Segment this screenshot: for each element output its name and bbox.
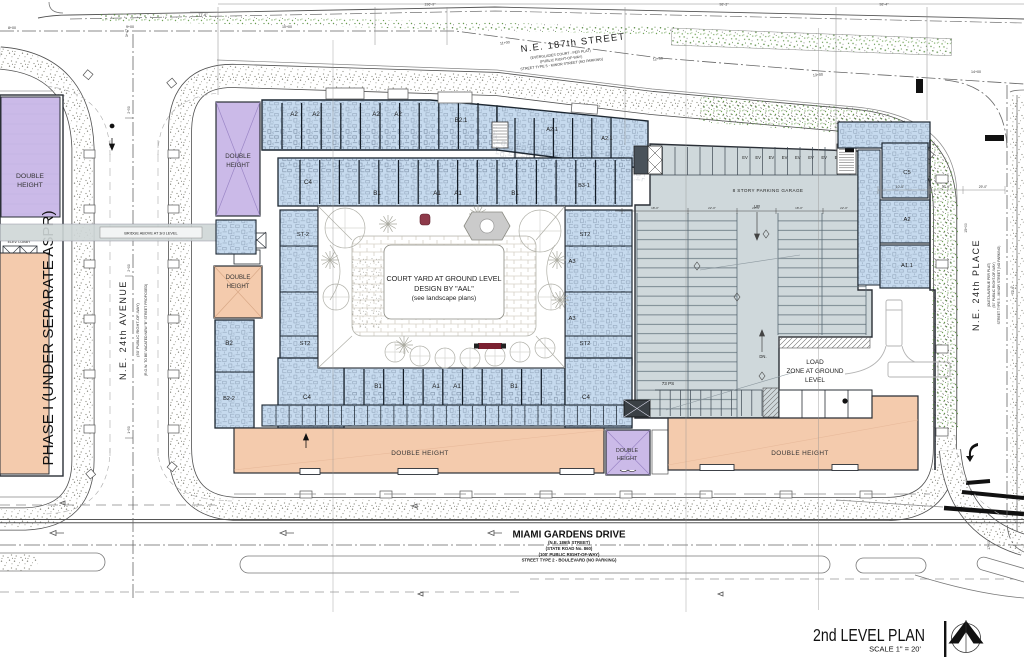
svg-text:29'-0": 29'-0" xyxy=(979,185,988,189)
svg-text:A1: A1 xyxy=(453,383,461,390)
svg-text:22'-0": 22'-0" xyxy=(708,206,716,210)
svg-text:DOUBLE HEIGHT: DOUBLE HEIGHT xyxy=(771,450,828,457)
svg-text:N.E. 24th PLACE: N.E. 24th PLACE xyxy=(971,239,981,331)
svg-text:(see landscape plans): (see landscape plans) xyxy=(412,295,477,302)
svg-text:2nd LEVEL PLAN: 2nd LEVEL PLAN xyxy=(813,625,925,645)
svg-text:14+00: 14+00 xyxy=(971,70,981,74)
svg-text:17+00: 17+00 xyxy=(987,540,991,550)
svg-text:(R.O.W. TO BE VACATED NEW "B": (R.O.W. TO BE VACATED NEW "B" STREET PRO… xyxy=(144,284,148,376)
svg-text:8 STORY PARKING GARAGE: 8 STORY PARKING GARAGE xyxy=(733,188,804,193)
svg-text:B1: B1 xyxy=(511,190,519,197)
svg-text:DOUBLE: DOUBLE xyxy=(225,153,250,160)
svg-text:EV: EV xyxy=(742,155,748,160)
svg-text:HEIGHT: HEIGHT xyxy=(226,162,250,169)
svg-text:(100' PUBLIC RIGHT-OF-WAY): (100' PUBLIC RIGHT-OF-WAY) xyxy=(539,552,600,557)
svg-text:HEIGHT: HEIGHT xyxy=(227,284,250,290)
svg-text:2+00: 2+00 xyxy=(127,264,131,271)
svg-text:C4: C4 xyxy=(582,394,590,401)
svg-text:1+50: 1+50 xyxy=(127,426,131,433)
svg-text:A2: A2 xyxy=(903,217,910,223)
svg-text:3+47: 3+47 xyxy=(125,29,129,37)
svg-text:C5: C5 xyxy=(903,170,910,176)
svg-text:DESIGN BY "AAL": DESIGN BY "AAL" xyxy=(414,284,474,293)
svg-text:A1: A1 xyxy=(454,190,462,197)
svg-text:33'-0": 33'-0" xyxy=(942,185,951,189)
svg-text:ST2: ST2 xyxy=(580,341,591,347)
svg-text:B2-2: B2-2 xyxy=(223,396,235,402)
svg-text:A2.1: A2.1 xyxy=(601,136,613,142)
svg-text:(50' PUBLIC RIGHT-OF-WAY): (50' PUBLIC RIGHT-OF-WAY) xyxy=(992,262,996,307)
svg-text:(50' PUBLIC RIGHT-OF-WAY): (50' PUBLIC RIGHT-OF-WAY) xyxy=(135,303,140,357)
svg-text:A2: A2 xyxy=(394,111,402,118)
svg-text:LEVEL: LEVEL xyxy=(805,377,825,384)
svg-text:PHASE I (UNDER SEPARATE ASPR): PHASE I (UNDER SEPARATE ASPR) xyxy=(40,211,57,466)
svg-text:A2: A2 xyxy=(372,111,380,118)
svg-text:10+00: 10+00 xyxy=(282,25,292,29)
svg-text:C4: C4 xyxy=(303,394,311,401)
svg-text:B1: B1 xyxy=(510,383,518,390)
svg-text:98'-4": 98'-4" xyxy=(879,3,889,7)
svg-text:23'-4": 23'-4" xyxy=(752,206,760,210)
svg-text:LOAD: LOAD xyxy=(806,359,824,366)
svg-text:15+00: 15+00 xyxy=(964,223,968,233)
svg-text:A3: A3 xyxy=(568,316,575,322)
svg-text:HEIGHT: HEIGHT xyxy=(617,456,638,462)
svg-text:EV: EV xyxy=(755,155,761,160)
svg-text:BRIDGE ABOVE AT 3rd LEVEL: BRIDGE ABOVE AT 3rd LEVEL xyxy=(124,232,177,236)
svg-text:77'-6": 77'-6" xyxy=(198,13,208,17)
svg-text:73 PS: 73 PS xyxy=(662,381,675,386)
svg-text:B1: B1 xyxy=(374,383,382,390)
svg-text:EV: EV xyxy=(769,155,775,160)
svg-text:A1: A1 xyxy=(432,383,440,390)
svg-text:18'-0": 18'-0" xyxy=(795,206,803,210)
svg-text:EV: EV xyxy=(795,155,801,160)
svg-text:HEIGHT: HEIGHT xyxy=(17,182,43,189)
svg-text:22'-0": 22'-0" xyxy=(840,206,848,210)
svg-text:2+50: 2+50 xyxy=(127,106,131,113)
svg-text:STREET TYPE 2 - BOULEVARD (NO: STREET TYPE 2 - BOULEVARD (NO PARKING) xyxy=(522,558,617,563)
svg-text:(N.E. 186th STREET): (N.E. 186th STREET) xyxy=(548,540,590,545)
svg-text:STREET TYPE 5 - MINOR STREET (: STREET TYPE 5 - MINOR STREET (NO PARKING… xyxy=(997,246,1001,325)
svg-text:SCALE 1" = 20': SCALE 1" = 20' xyxy=(869,645,921,654)
svg-text:72'-6": 72'-6" xyxy=(1011,285,1015,294)
svg-text:10'-0": 10'-0" xyxy=(896,185,905,189)
svg-text:8+00: 8+00 xyxy=(8,26,16,30)
svg-text:B2.1: B2.1 xyxy=(455,117,468,124)
svg-text:A3: A3 xyxy=(568,259,575,265)
svg-text:COURT YARD AT GROUND LEVEL: COURT YARD AT GROUND LEVEL xyxy=(386,274,501,283)
svg-text:ST2: ST2 xyxy=(300,341,311,347)
svg-text:ST-2: ST-2 xyxy=(297,232,309,238)
svg-text:B3-1: B3-1 xyxy=(578,183,590,189)
svg-text:A1: A1 xyxy=(433,190,441,197)
svg-text:EV: EV xyxy=(821,155,827,160)
svg-text:N.E. 24th AVENUE: N.E. 24th AVENUE xyxy=(118,280,128,380)
svg-text:DOUBLE: DOUBLE xyxy=(226,275,251,281)
svg-text:EV: EV xyxy=(782,155,788,160)
svg-text:B2: B2 xyxy=(225,340,233,347)
svg-text:(STATE ROAD No. 860): (STATE ROAD No. 860) xyxy=(546,546,593,551)
svg-text:A2.1: A2.1 xyxy=(546,127,558,133)
svg-text:EV: EV xyxy=(808,155,814,160)
svg-text:DOUBLE: DOUBLE xyxy=(616,448,639,454)
svg-text:(OLETA AVENUE PER PLAT): (OLETA AVENUE PER PLAT) xyxy=(987,263,991,307)
svg-text:DN.: DN. xyxy=(759,354,766,359)
svg-text:9+00: 9+00 xyxy=(126,25,134,29)
svg-text:196'-9": 196'-9" xyxy=(424,3,436,7)
svg-text:DOUBLE HEIGHT: DOUBLE HEIGHT xyxy=(391,450,448,457)
svg-text:18'-0": 18'-0" xyxy=(651,206,659,210)
svg-text:ZONE AT GROUND: ZONE AT GROUND xyxy=(787,368,844,375)
svg-text:98'-3": 98'-3" xyxy=(719,3,729,7)
svg-text:B1: B1 xyxy=(373,190,381,197)
svg-text:A1.1: A1.1 xyxy=(901,263,913,269)
svg-text:ST2: ST2 xyxy=(580,232,591,238)
svg-text:A2: A2 xyxy=(290,111,298,118)
svg-text:A2: A2 xyxy=(312,111,320,118)
svg-text:DOUBLE: DOUBLE xyxy=(16,173,44,180)
svg-text:C4: C4 xyxy=(304,179,312,186)
svg-text:MIAMI GARDENS DRIVE: MIAMI GARDENS DRIVE xyxy=(513,530,626,541)
